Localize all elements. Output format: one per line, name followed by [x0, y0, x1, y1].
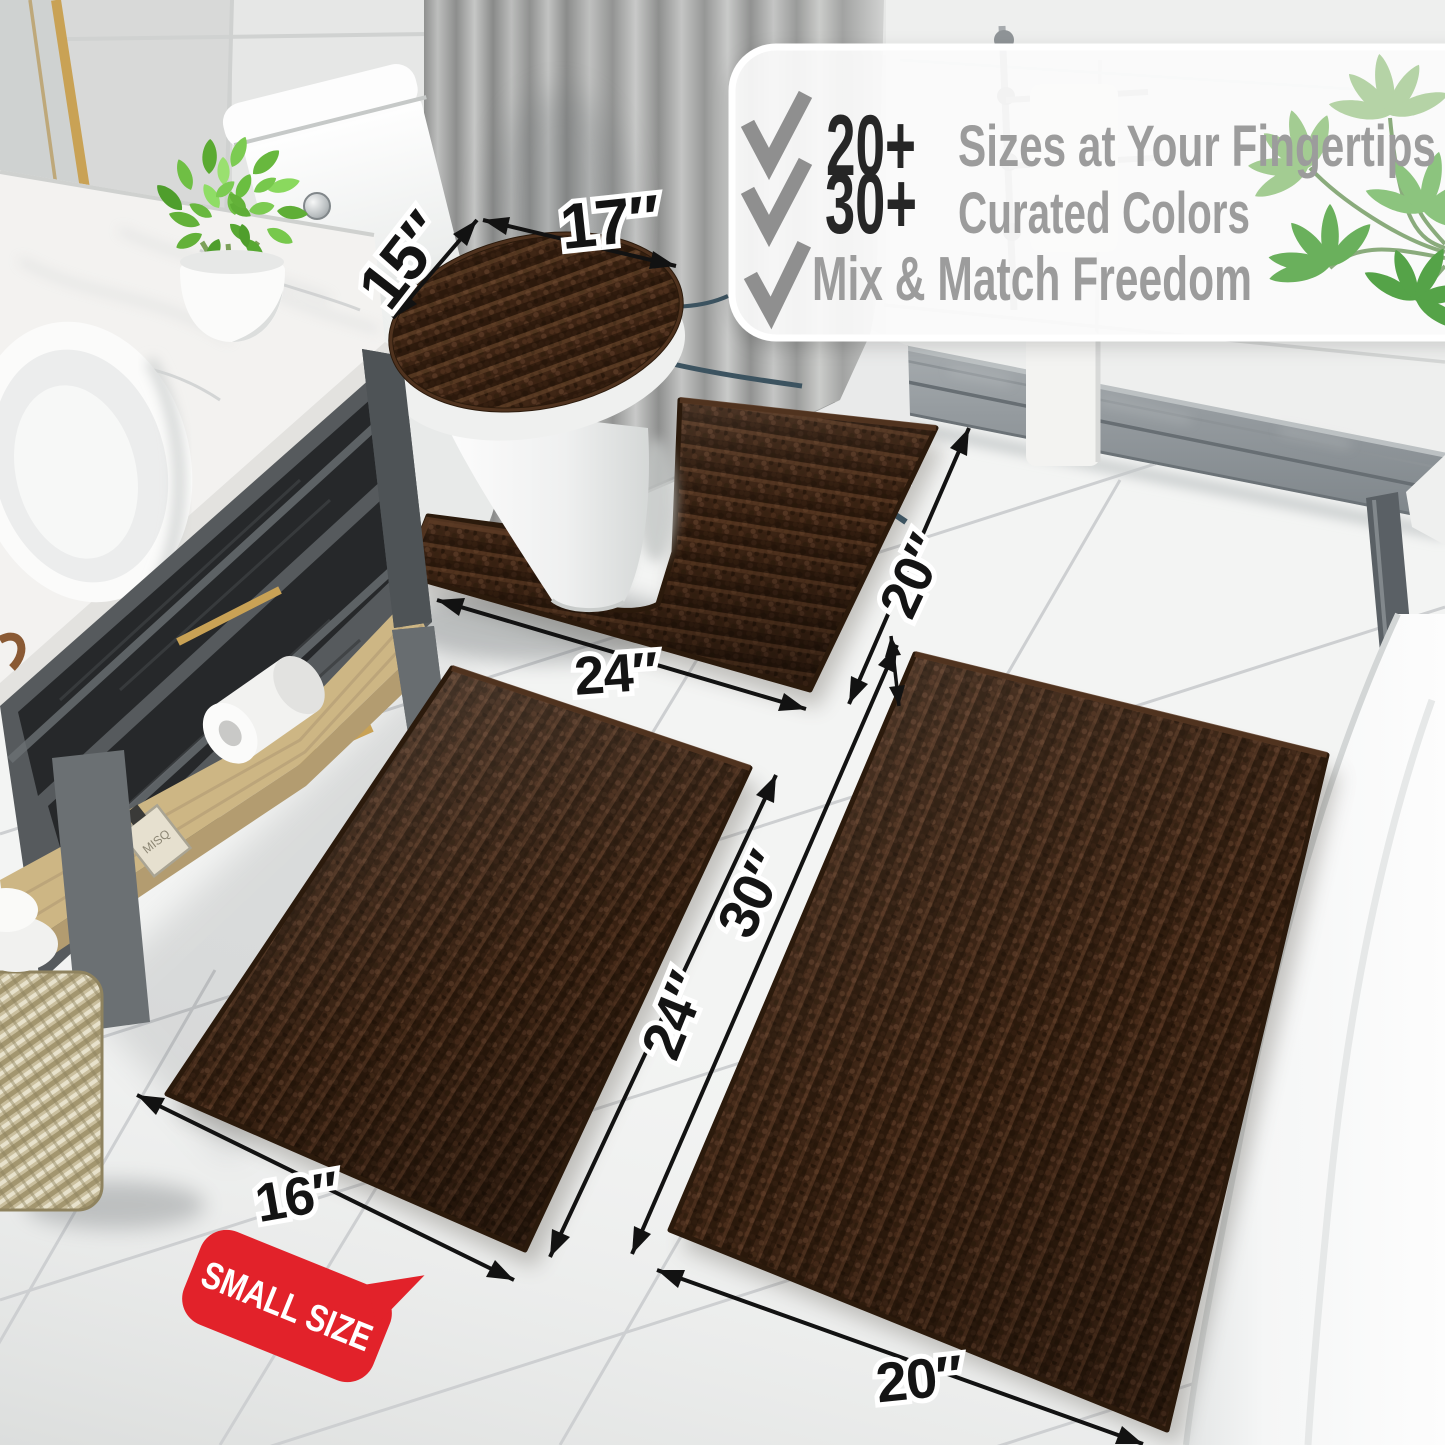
- svg-text:Mix & Match Freedom: Mix & Match Freedom: [812, 245, 1252, 314]
- svg-text:Sizes at Your Fingertips: Sizes at Your Fingertips: [958, 114, 1436, 179]
- svg-text:20″: 20″: [873, 1343, 965, 1415]
- svg-text:17″: 17″: [557, 181, 663, 263]
- svg-text:Curated Colors: Curated Colors: [958, 181, 1250, 246]
- svg-text:30+: 30+: [825, 156, 917, 252]
- svg-text:24″: 24″: [572, 641, 659, 707]
